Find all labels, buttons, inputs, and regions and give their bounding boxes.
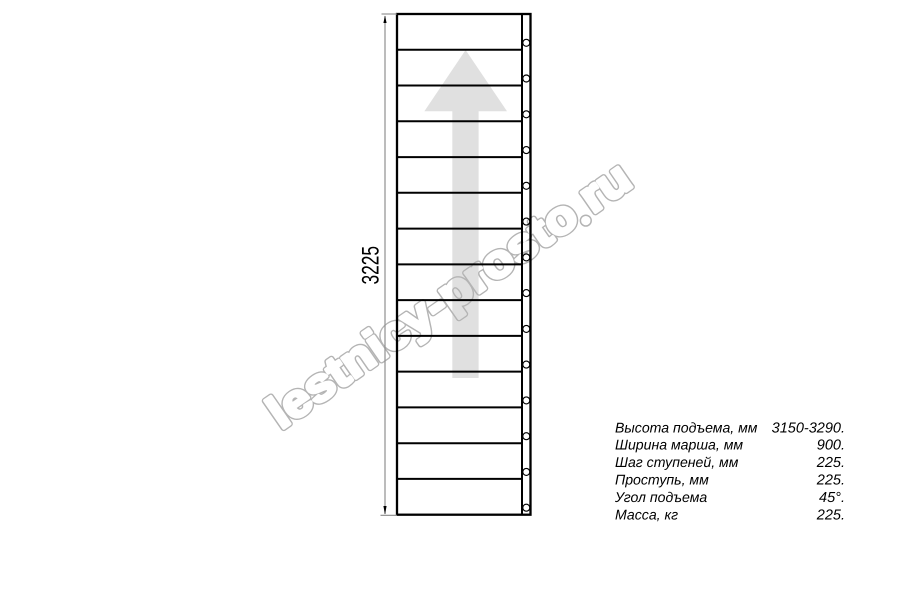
svg-text:225.: 225.	[816, 473, 845, 489]
svg-text:225.: 225.	[816, 455, 845, 471]
svg-text:Масса, кг: Масса, кг	[615, 506, 678, 522]
svg-text:Угол подъема: Угол подъема	[614, 489, 707, 505]
svg-text:Ширина марша, мм: Ширина марша, мм	[615, 437, 743, 453]
svg-text:3225: 3225	[358, 246, 385, 285]
svg-text:3150-3290.: 3150-3290.	[772, 420, 845, 436]
svg-text:225.: 225.	[816, 507, 845, 523]
svg-text:Высота подъема, мм: Высота подъема, мм	[615, 419, 758, 435]
svg-text:900.: 900.	[817, 438, 845, 454]
svg-text:Шаг ступеней, мм: Шаг ступеней, мм	[615, 454, 739, 470]
svg-text:45°.: 45°.	[819, 490, 845, 506]
svg-text:Проступь, мм: Проступь, мм	[615, 472, 709, 488]
